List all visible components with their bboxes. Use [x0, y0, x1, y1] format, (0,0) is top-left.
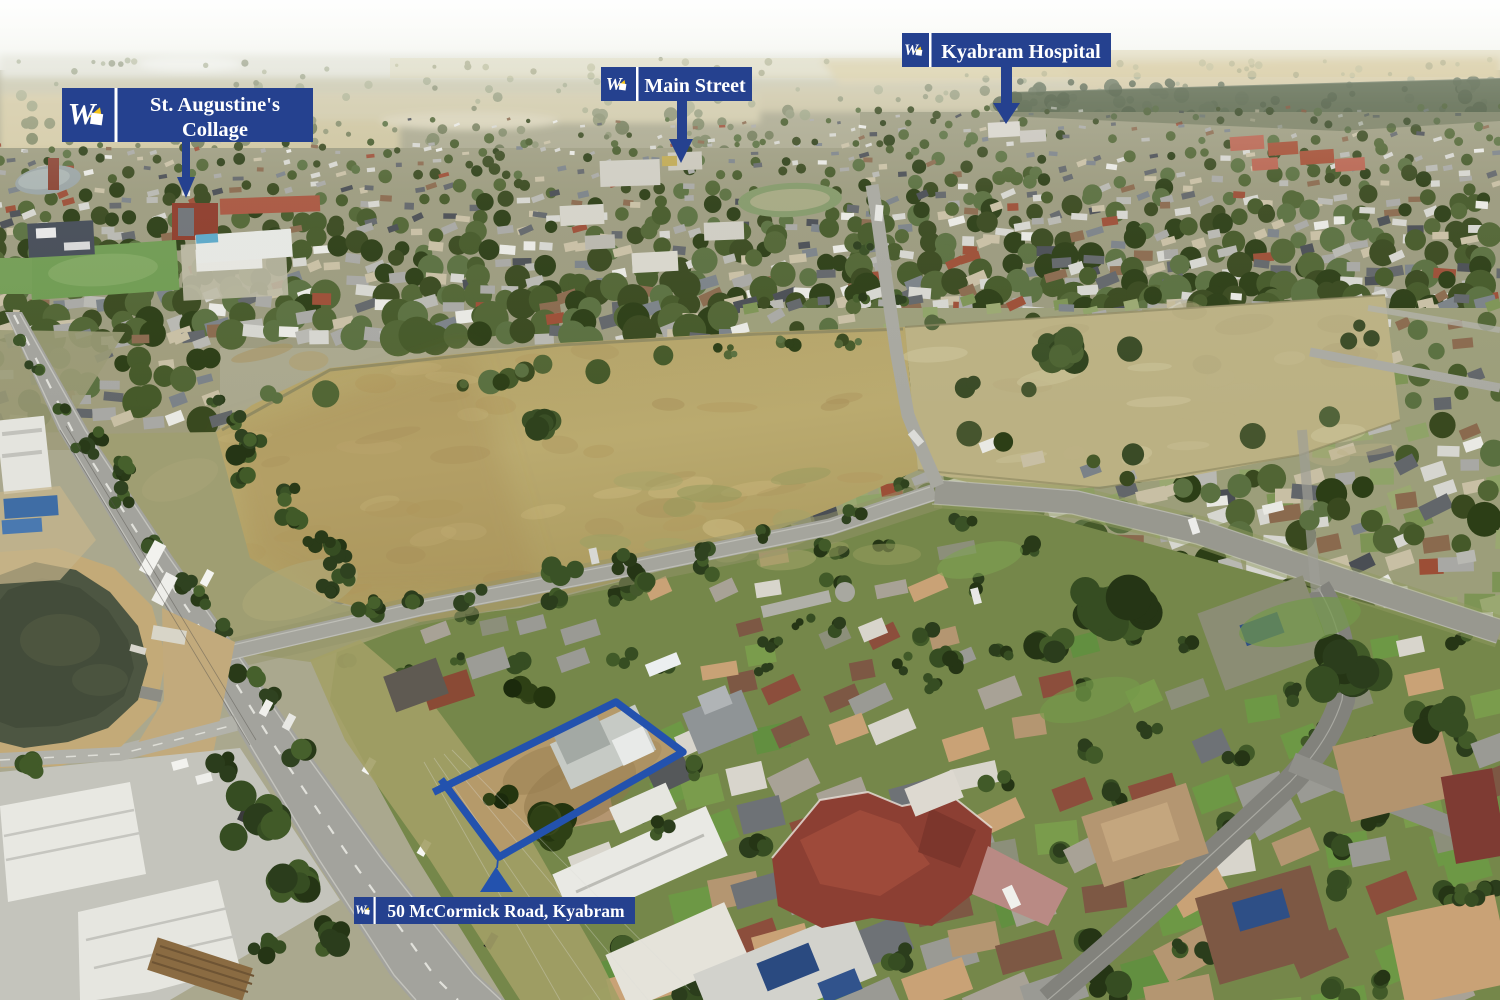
svg-text:St. Augustine's: St. Augustine's: [150, 94, 280, 116]
svg-text:Collage: Collage: [182, 119, 248, 141]
svg-text:Main Street: Main Street: [644, 75, 746, 97]
svg-text:50 McCormick Road, Kyabram: 50 McCormick Road, Kyabram: [387, 901, 625, 921]
svg-text:Kyabram Hospital: Kyabram Hospital: [941, 41, 1101, 63]
